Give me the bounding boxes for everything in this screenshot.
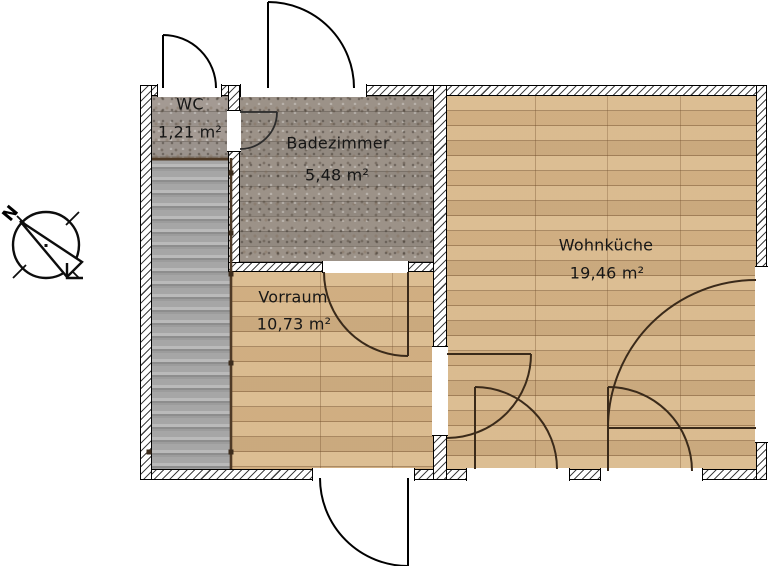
compass-center-dot	[45, 244, 48, 247]
wall-left-exterior	[140, 85, 152, 480]
compass-needle-tail	[67, 263, 83, 278]
door-opening-badezimmer-exterior	[240, 84, 367, 97]
door-opening-badezimmer-interior	[227, 110, 241, 152]
door-swing-arc	[320, 478, 408, 566]
compass-needle	[20, 221, 82, 277]
compass-rose: N	[0, 202, 83, 278]
wc-area-label: 1,21 m²	[158, 123, 222, 142]
vorraum-area-label: 10,73 m²	[257, 315, 332, 334]
wohnkueche-area-label: 19,46 m²	[570, 264, 645, 283]
compass-tick-nw	[17, 216, 26, 225]
badezimmer-area-label: 5,48 m²	[305, 166, 369, 185]
room-wohnkueche-floor	[447, 96, 756, 469]
compass-tick-se	[66, 265, 79, 278]
compass-tick-sw	[13, 265, 26, 278]
door-opening-vorraum-interior	[322, 261, 409, 273]
compass-tick-ne	[66, 212, 79, 225]
door-badezimmer-exterior	[268, 2, 354, 88]
wc-name-label: WC	[176, 95, 203, 114]
floor-plan-canvas: N WC 1,21 m² Badezimmer 5,48 m² Vorraum …	[0, 0, 768, 566]
door-opening-vorraum-wohnkueche	[432, 346, 448, 436]
door-swing-arc	[268, 2, 354, 88]
wohnkueche-name-label: Wohnküche	[559, 236, 653, 255]
door-wc-exterior	[163, 35, 216, 88]
door-opening-vorraum-exterior	[312, 468, 415, 481]
door-vorraum-exterior	[320, 478, 408, 566]
compass-circle	[13, 212, 79, 278]
door-opening-wohnkueche-south-right	[600, 468, 703, 481]
vorraum-name-label: Vorraum	[258, 288, 327, 307]
staircase	[152, 158, 230, 469]
north-label: N	[0, 202, 23, 226]
door-opening-wohnkueche-east	[755, 266, 768, 443]
door-swing-arc	[163, 35, 216, 88]
door-opening-wohnkueche-south-left	[466, 468, 570, 481]
badezimmer-name-label: Badezimmer	[286, 134, 389, 153]
